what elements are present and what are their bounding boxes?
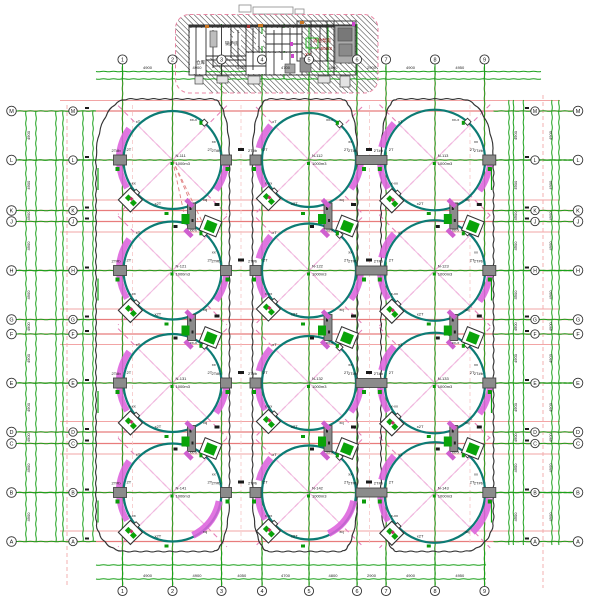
- svg-text:5: 5: [307, 58, 310, 64]
- svg-text:xx: xx: [212, 471, 216, 476]
- svg-text:3: 3: [220, 589, 223, 595]
- svg-text:xq: xq: [203, 529, 207, 534]
- svg-text:xx-x: xx-x: [452, 340, 459, 345]
- svg-text:4900: 4900: [548, 180, 553, 190]
- svg-text:x-xx: x-xx: [391, 513, 398, 518]
- svg-text:L: L: [72, 158, 75, 164]
- svg-text:C: C: [10, 442, 14, 448]
- svg-text:2T#b: 2T#b: [112, 481, 122, 486]
- svg-text:xx: xx: [348, 249, 352, 254]
- svg-text:N-133: N-133: [438, 376, 450, 381]
- svg-text:x2T: x2T: [155, 312, 162, 317]
- svg-text:B: B: [10, 491, 14, 497]
- svg-text:xx: xx: [348, 139, 352, 144]
- svg-text:xx: xx: [474, 249, 478, 254]
- svg-text:1000m3: 1000m3: [312, 494, 327, 499]
- svg-text:2T: 2T: [208, 480, 213, 485]
- svg-text:4050: 4050: [237, 573, 247, 578]
- svg-text:2T: 2T: [344, 258, 349, 263]
- svg-text:2T#b: 2T#b: [348, 481, 358, 486]
- svg-text:9: 9: [483, 589, 486, 595]
- svg-text:x2T: x2T: [291, 424, 298, 429]
- svg-text:x2T: x2T: [417, 534, 424, 539]
- svg-text:L: L: [576, 158, 579, 164]
- svg-text:x-xx: x-xx: [391, 181, 398, 186]
- svg-text:xq: xq: [339, 529, 343, 534]
- svg-text:N-121: N-121: [176, 264, 188, 269]
- svg-text:2T#b: 2T#b: [112, 148, 122, 153]
- svg-text:2: 2: [171, 58, 174, 64]
- svg-text:4900: 4900: [513, 322, 518, 332]
- svg-text:4900: 4900: [143, 65, 153, 70]
- svg-text:xx-x: xx-x: [452, 117, 459, 122]
- svg-text:4900: 4900: [513, 211, 518, 221]
- svg-text:xT: xT: [398, 342, 403, 347]
- svg-text:4900: 4900: [548, 353, 553, 363]
- svg-text:1000m3: 1000m3: [438, 272, 453, 277]
- svg-text:2T#b: 2T#b: [474, 259, 484, 264]
- svg-text:x2T: x2T: [155, 201, 162, 206]
- svg-text:xx-x: xx-x: [190, 340, 197, 345]
- svg-text:xq: xq: [203, 307, 207, 312]
- svg-text:1000m3: 1000m3: [438, 384, 453, 389]
- svg-text:4900: 4900: [548, 211, 553, 221]
- svg-text:4900: 4900: [26, 402, 31, 412]
- svg-text:1000m3: 1000m3: [176, 272, 191, 277]
- svg-text:M: M: [576, 109, 581, 115]
- svg-text:4900: 4900: [513, 433, 518, 443]
- svg-text:1: 1: [121, 589, 124, 595]
- svg-text:xx: xx: [474, 362, 478, 367]
- svg-text:2T: 2T: [344, 480, 349, 485]
- svg-text:xq: xq: [203, 197, 207, 202]
- svg-text:4900: 4900: [26, 463, 31, 473]
- svg-text:4900: 4900: [548, 433, 553, 443]
- svg-text:1000m3: 1000m3: [438, 161, 453, 166]
- svg-text:C: C: [71, 441, 75, 447]
- svg-text:4700: 4700: [281, 573, 291, 578]
- svg-text:4900: 4900: [513, 402, 518, 412]
- svg-text:xx: xx: [212, 139, 216, 144]
- svg-text:4700: 4700: [281, 65, 291, 70]
- svg-text:xx-x: xx-x: [190, 227, 197, 232]
- svg-text:2T: 2T: [127, 370, 132, 375]
- svg-text:xx-x: xx-x: [190, 449, 197, 454]
- svg-text:xT: xT: [136, 342, 141, 347]
- svg-text:G: G: [533, 317, 537, 323]
- svg-text:1000m3: 1000m3: [312, 384, 327, 389]
- svg-text:N-111: N-111: [176, 153, 187, 158]
- svg-text:2T#b: 2T#b: [112, 371, 122, 376]
- svg-text:xx: xx: [474, 139, 478, 144]
- svg-text:2T: 2T: [389, 147, 394, 152]
- svg-text:4900: 4900: [26, 211, 31, 221]
- svg-text:9: 9: [483, 58, 486, 64]
- svg-text:x-xx: x-xx: [265, 291, 272, 296]
- svg-text:4800: 4800: [329, 573, 339, 578]
- svg-text:x2T: x2T: [291, 534, 298, 539]
- svg-text:x2T: x2T: [417, 424, 424, 429]
- svg-text:4900: 4900: [548, 130, 553, 140]
- svg-text:G: G: [71, 317, 75, 323]
- svg-text:4900: 4900: [26, 180, 31, 190]
- svg-text:4900: 4900: [193, 573, 203, 578]
- svg-text:2T#b: 2T#b: [348, 259, 358, 264]
- svg-text:xT: xT: [272, 230, 277, 235]
- svg-text:2T: 2T: [389, 258, 394, 263]
- svg-text:6: 6: [355, 58, 358, 64]
- svg-text:x2T: x2T: [155, 424, 162, 429]
- svg-text:xx: xx: [348, 362, 352, 367]
- svg-text:B: B: [576, 491, 580, 497]
- svg-text:4050: 4050: [237, 65, 247, 70]
- svg-text:K: K: [10, 209, 14, 215]
- svg-text:x-xx: x-xx: [265, 181, 272, 186]
- svg-text:xq: xq: [203, 420, 207, 425]
- svg-text:2T: 2T: [389, 480, 394, 485]
- svg-text:2T#b: 2T#b: [374, 148, 384, 153]
- svg-text:J: J: [577, 220, 580, 226]
- svg-text:4900: 4900: [26, 241, 31, 251]
- svg-text:4900: 4900: [26, 130, 31, 140]
- svg-text:x2T: x2T: [291, 201, 298, 206]
- svg-text:3: 3: [220, 58, 223, 64]
- svg-text:4900: 4900: [548, 241, 553, 251]
- svg-text:x-xx: x-xx: [128, 291, 135, 296]
- svg-text:4900: 4900: [26, 512, 31, 522]
- svg-text:F: F: [533, 332, 536, 338]
- svg-text:xq: xq: [339, 420, 343, 425]
- svg-text:M: M: [9, 109, 14, 115]
- svg-text:N-132: N-132: [312, 376, 324, 381]
- svg-text:4900: 4900: [406, 573, 416, 578]
- svg-text:2T: 2T: [344, 370, 349, 375]
- svg-text:xx-x: xx-x: [190, 117, 197, 122]
- svg-text:xT: xT: [136, 452, 141, 457]
- svg-text:2T#b: 2T#b: [474, 371, 484, 376]
- svg-text:4900: 4900: [26, 433, 31, 443]
- svg-text:4800: 4800: [329, 65, 339, 70]
- svg-text:xq: xq: [339, 197, 343, 202]
- svg-text:2T: 2T: [470, 258, 475, 263]
- svg-text:4900: 4900: [548, 402, 553, 412]
- svg-text:2T: 2T: [470, 480, 475, 485]
- svg-text:2T#b: 2T#b: [474, 481, 484, 486]
- svg-text:4950: 4950: [455, 65, 465, 70]
- svg-text:2T: 2T: [470, 147, 475, 152]
- svg-text:2900: 2900: [367, 573, 377, 578]
- svg-text:xx-x: xx-x: [326, 227, 333, 232]
- svg-text:M: M: [533, 109, 537, 115]
- svg-text:2T#b: 2T#b: [248, 371, 258, 376]
- svg-text:D: D: [10, 430, 14, 436]
- svg-text:4: 4: [260, 58, 263, 64]
- svg-text:L: L: [10, 158, 13, 164]
- svg-text:K: K: [576, 209, 580, 215]
- svg-text:xT: xT: [136, 230, 141, 235]
- svg-text:F: F: [71, 332, 74, 338]
- svg-text:5: 5: [307, 589, 310, 595]
- svg-text:2: 2: [171, 589, 174, 595]
- svg-text:A: A: [10, 540, 14, 546]
- svg-text:2T#b: 2T#b: [212, 481, 222, 486]
- svg-text:xx-x: xx-x: [326, 340, 333, 345]
- svg-text:1000m3: 1000m3: [312, 272, 327, 277]
- svg-text:E: E: [10, 381, 14, 387]
- svg-text:4900: 4900: [548, 322, 553, 332]
- svg-text:xx: xx: [212, 362, 216, 367]
- svg-text:7: 7: [384, 58, 387, 64]
- svg-text:1000m3: 1000m3: [176, 161, 191, 166]
- svg-text:xT: xT: [272, 452, 277, 457]
- svg-text:xT: xT: [272, 119, 277, 124]
- svg-text:G: G: [576, 318, 580, 324]
- svg-text:x2T: x2T: [155, 534, 162, 539]
- svg-text:N-141: N-141: [176, 486, 188, 491]
- svg-text:N-142: N-142: [312, 486, 324, 491]
- svg-text:M: M: [71, 109, 75, 115]
- svg-text:2T#b: 2T#b: [248, 259, 258, 264]
- svg-text:1000m3: 1000m3: [176, 384, 191, 389]
- svg-text:2T: 2T: [208, 147, 213, 152]
- svg-text:xq: xq: [465, 307, 469, 312]
- svg-text:2T#b: 2T#b: [112, 259, 122, 264]
- svg-text:2T: 2T: [208, 258, 213, 263]
- svg-text:L: L: [534, 158, 537, 164]
- svg-text:4900: 4900: [513, 290, 518, 300]
- svg-text:xx-x: xx-x: [452, 449, 459, 454]
- svg-text:x2T: x2T: [291, 312, 298, 317]
- svg-text:8: 8: [433, 589, 436, 595]
- svg-text:x-xx: x-xx: [128, 513, 135, 518]
- svg-text:锅炉房: 锅炉房: [225, 40, 239, 47]
- svg-text:xx: xx: [348, 471, 352, 476]
- svg-text:N-131: N-131: [176, 376, 188, 381]
- svg-text:4900: 4900: [513, 463, 518, 473]
- svg-text:xT: xT: [398, 452, 403, 457]
- svg-text:D: D: [533, 430, 537, 436]
- svg-text:2900: 2900: [367, 65, 377, 70]
- svg-text:x2T: x2T: [417, 201, 424, 206]
- svg-text:7: 7: [384, 589, 387, 595]
- svg-text:2T: 2T: [263, 258, 268, 263]
- svg-text:xT: xT: [398, 119, 403, 124]
- svg-text:2T#b: 2T#b: [374, 371, 384, 376]
- svg-text:N-113: N-113: [438, 153, 449, 158]
- svg-text:4950: 4950: [455, 573, 465, 578]
- svg-text:J: J: [10, 220, 13, 226]
- svg-text:4900: 4900: [548, 512, 553, 522]
- svg-text:1000m3: 1000m3: [438, 494, 453, 499]
- svg-text:2T: 2T: [208, 370, 213, 375]
- svg-text:1000m3: 1000m3: [312, 161, 327, 166]
- svg-text:xq: xq: [339, 307, 343, 312]
- svg-text:N-112: N-112: [312, 153, 323, 158]
- svg-text:4900: 4900: [26, 290, 31, 300]
- svg-text:x-xx: x-xx: [128, 404, 135, 409]
- svg-text:H: H: [533, 268, 537, 274]
- svg-text:xT: xT: [398, 230, 403, 235]
- svg-text:4900: 4900: [548, 463, 553, 473]
- svg-text:2T: 2T: [263, 480, 268, 485]
- svg-text:4900: 4900: [406, 65, 416, 70]
- svg-text:2T: 2T: [127, 258, 132, 263]
- svg-text:x-xx: x-xx: [265, 513, 272, 518]
- svg-text:xT: xT: [272, 342, 277, 347]
- svg-text:2T: 2T: [344, 147, 349, 152]
- svg-text:N-143: N-143: [438, 486, 450, 491]
- svg-text:4900: 4900: [513, 241, 518, 251]
- svg-text:2T#b: 2T#b: [348, 148, 358, 153]
- svg-text:6: 6: [355, 589, 358, 595]
- svg-text:H: H: [576, 269, 580, 275]
- svg-text:x-xx: x-xx: [391, 404, 398, 409]
- svg-text:D: D: [576, 430, 580, 436]
- svg-text:4900: 4900: [26, 353, 31, 363]
- svg-text:4900: 4900: [548, 290, 553, 300]
- svg-text:2T#b: 2T#b: [474, 148, 484, 153]
- svg-text:x2T: x2T: [417, 312, 424, 317]
- svg-text:2T#b: 2T#b: [348, 371, 358, 376]
- svg-text:4900: 4900: [513, 512, 518, 522]
- svg-text:xq: xq: [465, 420, 469, 425]
- svg-text:2T#b: 2T#b: [248, 481, 258, 486]
- svg-text:2T#b: 2T#b: [212, 371, 222, 376]
- svg-text:2T: 2T: [470, 370, 475, 375]
- svg-text:2T#b: 2T#b: [374, 259, 384, 264]
- svg-text:x-xx: x-xx: [265, 404, 272, 409]
- svg-text:xx: xx: [212, 249, 216, 254]
- svg-text:N-122: N-122: [312, 264, 324, 269]
- svg-text:H: H: [71, 268, 75, 274]
- svg-text:xx-x: xx-x: [326, 449, 333, 454]
- svg-text:A: A: [576, 540, 580, 546]
- svg-text:xx: xx: [474, 471, 478, 476]
- svg-text:C: C: [576, 442, 580, 448]
- svg-text:1: 1: [121, 58, 124, 64]
- svg-text:D: D: [71, 430, 75, 436]
- svg-text:2T: 2T: [389, 370, 394, 375]
- svg-text:2T#b: 2T#b: [374, 481, 384, 486]
- svg-text:N-123: N-123: [438, 264, 450, 269]
- svg-text:4900: 4900: [513, 180, 518, 190]
- svg-text:G: G: [9, 318, 13, 324]
- svg-text:xq: xq: [465, 529, 469, 534]
- svg-text:4: 4: [260, 589, 263, 595]
- svg-text:C: C: [533, 441, 537, 447]
- svg-text:xq: xq: [465, 197, 469, 202]
- svg-text:2T: 2T: [263, 370, 268, 375]
- svg-text:2T#b: 2T#b: [212, 148, 222, 153]
- svg-text:4900: 4900: [193, 65, 203, 70]
- svg-text:xT: xT: [136, 119, 141, 124]
- svg-text:4900: 4900: [143, 573, 153, 578]
- svg-text:4900: 4900: [513, 353, 518, 363]
- svg-text:2T: 2T: [263, 147, 268, 152]
- svg-text:1000m3: 1000m3: [176, 494, 191, 499]
- svg-text:2T: 2T: [127, 480, 132, 485]
- svg-text:xx-x: xx-x: [326, 117, 333, 122]
- svg-text:8: 8: [433, 58, 436, 64]
- svg-text:x-xx: x-xx: [391, 291, 398, 296]
- svg-text:4900: 4900: [26, 322, 31, 332]
- svg-text:H: H: [10, 269, 14, 275]
- svg-text:E: E: [576, 381, 580, 387]
- svg-text:2T: 2T: [127, 147, 132, 152]
- svg-text:2T#b: 2T#b: [248, 148, 258, 153]
- svg-text:xx-x: xx-x: [452, 227, 459, 232]
- svg-text:x-xx: x-xx: [128, 181, 135, 186]
- svg-text:4900: 4900: [513, 130, 518, 140]
- svg-text:2T#b: 2T#b: [212, 259, 222, 264]
